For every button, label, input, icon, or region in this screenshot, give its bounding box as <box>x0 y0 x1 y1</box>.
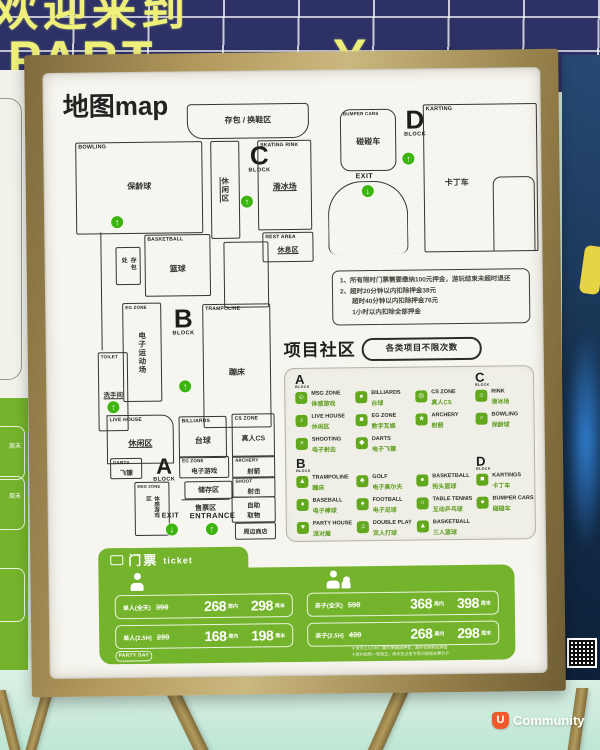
double-play-icon: ♫ <box>357 521 369 533</box>
golf-icon: ♣ <box>356 475 368 487</box>
child-person-icon <box>341 576 350 588</box>
ticket-title-en: ticket <box>163 555 193 565</box>
direction-arrow-icon: ↑ <box>241 196 253 208</box>
map-area-storage: 储存区 <box>184 481 232 500</box>
map-exit-bottom-label: EXIT <box>162 512 180 519</box>
cs-zone-icon: ◎ <box>415 390 427 402</box>
note-line: 1小时以内扣除全部押金 <box>340 306 522 319</box>
map-area-eg-zone: EG ZONE 电子游戏 <box>179 456 229 479</box>
block-b-label: B BLOCK <box>165 305 201 337</box>
legend-block-c: CBLOCK <box>475 371 490 388</box>
map-poster: 地图map 存包 / 换鞋区 BOWLING 保龄球 休闲区 C BLOCK <box>42 67 547 679</box>
legend-item-bowling: ○BOWLING保龄球 <box>475 411 533 432</box>
watermark-text: Community <box>513 713 585 728</box>
left-board-price-fragment: 周末 <box>0 476 25 530</box>
deposit-notes: 1、所有限时门票需要缴纳100元押金，游玩结束未超时退还 2、超时20分钟以内扣… <box>332 268 531 325</box>
legend-panel: ABLOCK CBLOCK BBLOCK DBLOCK ☺MSG ZONE体感游… <box>284 365 536 542</box>
map-area-karting: KARTING 卡丁车 <box>423 103 539 252</box>
map-area-archery: ARCHERY 射箭 <box>232 455 275 479</box>
legend-item-darts: ◆DARTS电子飞镖 <box>356 436 414 457</box>
map-title: 地图map <box>62 86 168 124</box>
legend-item-eg-zone: ■EG ZONE数字互娱 <box>355 413 413 434</box>
section-badge: 各类项目不限次数 <box>362 337 482 361</box>
photo-scene: 欢迎来到 PART - Y 周末 周末 地图map 存包 / 换鞋区 <box>0 0 600 750</box>
map-area-skating-rink: SKATING RINK 滑冰场 <box>257 140 312 231</box>
price-row-family-timed: 亲子(2.5H) 499 268周内 298周末 <box>307 621 499 647</box>
darts-icon: ◆ <box>356 437 368 449</box>
legend-item-baseball: ♦BASEBALL电子棒球 <box>297 497 355 518</box>
map-area-bowling: BOWLING 保龄球 <box>75 141 203 235</box>
map-area-cs-zone: CS ZONE 真人CS <box>231 413 275 458</box>
shooting-icon: × <box>296 438 308 450</box>
price-row-family-allday: 亲子(全天) 598 368周内 398周末 <box>307 591 499 617</box>
map-area-self-pickup: 自助 取物 <box>232 496 276 523</box>
legend-block-a: ABLOCK <box>295 373 310 390</box>
baseball-icon: ♦ <box>297 499 309 511</box>
legend-item-basketball-3v3: ▲BASKETBALL三人篮球 <box>417 519 475 540</box>
ticket-icon <box>110 555 123 565</box>
legend-item-party-house: ♥PARTY HOUSE派对屋 <box>297 520 355 541</box>
legend-item-live-house: ♪LIVE HOUSE休闲区 <box>296 413 354 434</box>
legend-item-shooting: ×SHOOTING电子射击 <box>296 436 354 457</box>
map-board-frame: 地图map 存包 / 换鞋区 BOWLING 保龄球 休闲区 C BLOCK <box>24 49 566 697</box>
map-area-msg-zone: MSG ZONE 体感游戏区 <box>134 482 170 536</box>
direction-arrow-icon: ↑ <box>179 380 191 392</box>
corridor-line <box>100 232 102 350</box>
legend-item-double-play: ♫DOUBLE PLAY双人打球 <box>357 520 415 541</box>
left-board-price-fragment: 周末 <box>0 426 25 480</box>
bumper-cars-icon: ● <box>477 497 489 509</box>
section-title: 项目社区 <box>284 335 356 361</box>
legend-item-basketball-street: ●BASKETBALL街头篮球 <box>416 473 474 494</box>
legend-item-table-tennis: ○TABLE TENNIS互动乒乓球 <box>417 496 475 517</box>
map-area-rest: REST AREA 休息区 <box>262 232 313 263</box>
map-area-locker-shoe: 存包 / 换鞋区 <box>187 103 309 139</box>
football-icon: ♠ <box>357 498 369 510</box>
legend-item-bumper-cars: ●BUMPER CARS碰碰车 <box>477 495 535 516</box>
party-house-icon: ♥ <box>297 522 309 534</box>
u-community-logo: U <box>492 712 509 729</box>
msg-zone-icon: ☺ <box>295 392 307 404</box>
left-board-white-panel <box>0 70 28 400</box>
map-entrance-label: ENTRANCE <box>190 511 236 521</box>
legend-item-kartings: ■KARTINGS卡丁车 <box>476 472 534 493</box>
exit-track-path <box>328 181 409 255</box>
karting-icon: ■ <box>476 474 488 486</box>
ticket-title-zh: 门票 <box>128 550 158 569</box>
eg-zone-icon: ■ <box>356 414 368 426</box>
adult-person-icon <box>326 570 339 588</box>
left-board-price-fragment <box>0 568 25 622</box>
map-area-darts: DARTS 飞镖 <box>110 458 142 479</box>
trampoline-icon: ▲ <box>296 476 308 488</box>
basketball-icon: ● <box>416 474 428 486</box>
entrance-arrow-icon: ↑ <box>206 523 218 535</box>
left-board-green-panel: 周末 周末 <box>0 398 28 670</box>
legend-item-golf: ♣GOLF电子高尔夫 <box>356 474 414 495</box>
map-area-bumper-cars: BUMPER CARS 碰碰车 <box>340 109 397 172</box>
block-a-label: A BLOCK <box>147 455 181 483</box>
archery-icon: ★ <box>416 413 428 425</box>
left-board-outline <box>0 98 22 380</box>
legend-item-billiards: ●BILLIARDS台球 <box>355 390 413 411</box>
map-exit-top-label: EXIT <box>356 173 374 180</box>
karting-track-inner <box>493 176 536 252</box>
direction-arrow-icon: ↑ <box>111 216 123 228</box>
ticket-panel: 单人(全天) 398 268周内 298周末 单人(2.5H) 299 168周… <box>98 564 515 664</box>
party-day-badge: PARTY DAY <box>115 651 152 662</box>
watermark: U Community <box>492 712 585 729</box>
legend-item-cs-zone: ◎CS ZONE真人CS <box>415 389 473 410</box>
price-row-single-allday: 单人(全天) 398 268周内 298周末 <box>115 593 293 619</box>
legend-item-msg-zone: ☺MSG ZONE体感游戏 <box>295 390 353 411</box>
exit-bottom-arrow-icon: ↓ <box>166 523 178 535</box>
map-area-billiards: BILLIARDS 台球 <box>179 416 228 459</box>
map-area-locker-small: 存包处 <box>115 247 140 285</box>
basketball-3v3-icon: ▲ <box>417 520 429 532</box>
map-area-shoot: SHOOT 射击 <box>232 476 275 498</box>
qr-code <box>567 638 597 668</box>
legend-block-d: DBLOCK <box>476 455 491 472</box>
legend-item-rink: ☼RINK滑冰场 <box>475 388 533 409</box>
legend-block-b: BBLOCK <box>296 457 311 474</box>
single-person-icon <box>130 573 143 591</box>
direction-arrow-icon: ↑ <box>107 401 119 413</box>
legend-item-football: ♠FOOTBALL电子足球 <box>357 497 415 518</box>
billiards-icon: ● <box>355 391 367 403</box>
direction-arrow-icon: ↑ <box>402 153 414 165</box>
legend-item-trampoline: ▲TRAMPOLINE蹦床 <box>296 474 354 495</box>
map-area-shop: 周边商店 <box>235 522 276 539</box>
price-row-single-timed: 单人(2.5H) 299 168周内 198周末 <box>115 623 293 649</box>
ticket-fine-print: ＊全天/2.5小时门票均需缴纳押金，超时扣除相应押金 ＊周内指周一至周五，周末及… <box>351 645 501 659</box>
bowling-icon: ○ <box>475 413 487 425</box>
note-line: 1、所有限时门票需要缴纳100元押金，游玩结束未超时退还 <box>340 274 522 287</box>
map-area-trampoline: TRAMPOLINE 蹦床 <box>202 303 272 428</box>
map-area-basketball: BASKETBALL 篮球 <box>144 234 211 297</box>
live-house-icon: ♪ <box>296 415 308 427</box>
right-board-glow <box>566 330 600 550</box>
legend-item-archery: ★ARCHERY射箭 <box>415 412 473 433</box>
map-area-lounge-strip: 休闲区 <box>210 141 240 239</box>
rink-icon: ☼ <box>475 390 487 402</box>
table-tennis-icon: ○ <box>417 497 429 509</box>
